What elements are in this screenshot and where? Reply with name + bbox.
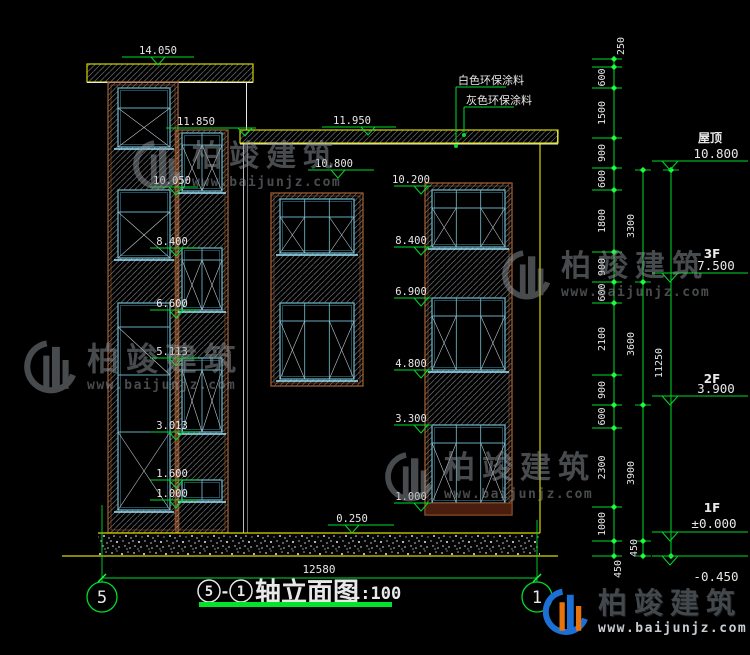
- title-scale: 1:100: [350, 584, 401, 604]
- elevation-mark-value: 8.400: [156, 236, 188, 248]
- elevation-mark-value: 1.600: [156, 468, 188, 480]
- chain-dim: 3300: [626, 214, 637, 238]
- elevation-mark-value: 10.800: [315, 158, 353, 170]
- chain-dim: 1500: [597, 101, 608, 125]
- floor-levels: 屋顶10.8003F7.5002F3.9001F±0.000-0.450: [652, 131, 748, 584]
- elevation-mark-value: 1.000: [156, 488, 188, 500]
- floor-elevation: 7.500: [697, 258, 735, 273]
- elevation-mark-value: 6.900: [395, 286, 427, 298]
- total-width-value: 12580: [302, 563, 335, 576]
- floor-name: 屋顶: [698, 131, 722, 145]
- axis-bubble-number: 5: [97, 588, 107, 608]
- title-axis-start: 5: [205, 584, 213, 600]
- drawing-title: 5-1轴立面图1:100: [198, 577, 401, 608]
- floor-elevation: -0.450: [693, 569, 738, 584]
- axis-bubble-number: 1: [532, 588, 542, 608]
- elevation-mark-value: 11.950: [333, 115, 371, 127]
- elevation-drawing-canvas: 14.05011.85010.0508.4006.6005.1133.0131.…: [0, 0, 750, 655]
- chain-dim: 600: [597, 170, 608, 188]
- chain-dim: 900: [597, 381, 608, 399]
- chain-dim: 250: [616, 37, 627, 55]
- elevation-mark-value: 6.600: [156, 298, 188, 310]
- chain-dim: 2300: [597, 455, 608, 479]
- chain-dim: 450: [613, 560, 624, 578]
- chain-dim: 600: [597, 283, 608, 301]
- chain-dim: 600: [597, 68, 608, 86]
- elevation-mark-value: 10.200: [392, 174, 430, 186]
- chain-dim: 900: [597, 258, 608, 276]
- floor-elevation: 10.800: [693, 146, 738, 161]
- elevation-mark-value: 10.050: [153, 175, 191, 187]
- title-axis-end: 1: [237, 584, 245, 600]
- cad-elevation-screenshot: 14.05011.85010.0508.4006.6005.1133.0131.…: [0, 0, 750, 655]
- chain-dim: 2100: [597, 327, 608, 351]
- chain-dim: 900: [597, 144, 608, 162]
- elevation-mark-value: 11.850: [177, 116, 215, 128]
- chain-dim: 1800: [597, 209, 608, 233]
- elevation-mark-value: 14.050: [139, 45, 177, 57]
- ground-plinth: [62, 533, 558, 556]
- elevation-mark-value: 8.400: [395, 235, 427, 247]
- floor-name: 1F: [704, 501, 721, 515]
- elevation-mark-value: 1.000: [395, 491, 427, 503]
- middle-window-group: [271, 193, 363, 386]
- chain-dim: 3900: [626, 461, 637, 485]
- chain-dim: 600: [597, 407, 608, 425]
- right-window-group: [425, 183, 512, 515]
- chain-dim: 3600: [626, 332, 637, 356]
- title-separator: -: [220, 582, 230, 601]
- elevation-mark-value: 5.113: [156, 346, 188, 358]
- elevation-mark-value: 3.013: [156, 420, 188, 432]
- dimension-chains: 2506001500900600180090060021009006002300…: [592, 37, 679, 578]
- chain-dim: 1000: [597, 512, 608, 536]
- floor-elevation: ±0.000: [691, 516, 736, 531]
- coating-label: 灰色环保涂料: [466, 93, 532, 107]
- elevation-mark-value: 3.300: [395, 413, 427, 425]
- elevation-mark-value: 4.800: [395, 358, 427, 370]
- elevation-mark-value: 0.250: [336, 513, 368, 525]
- chain-dim: 11250: [654, 348, 665, 378]
- floor-elevation: 3.900: [697, 381, 735, 396]
- coating-label: 白色环保涂料: [458, 73, 524, 87]
- chain-dim: 450: [629, 539, 640, 557]
